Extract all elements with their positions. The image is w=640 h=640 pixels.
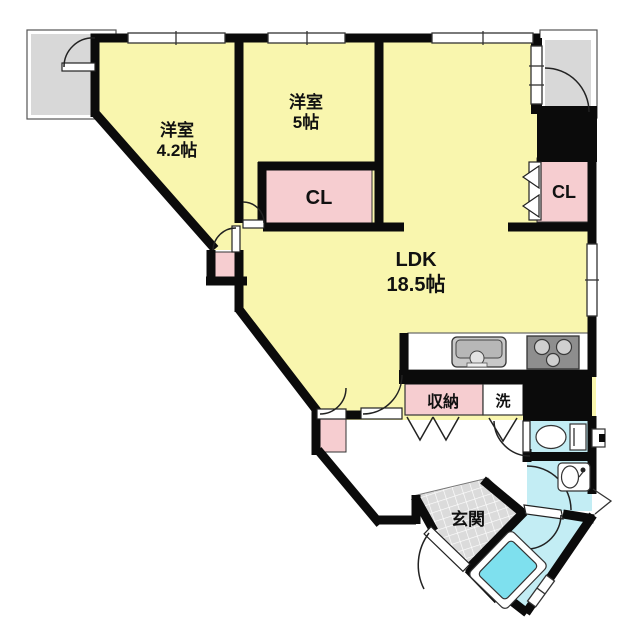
ldk-name-label: LDK <box>395 249 437 271</box>
window-right <box>585 244 599 316</box>
room-ldk-extension <box>379 38 540 232</box>
floor-plan: 洋室 4.2帖 洋室 5帖 CL CL LDK 18.5帖 収納 洗 玄関 <box>0 0 640 640</box>
closet-mini-bedroom1 <box>215 252 237 279</box>
laundry-bifold-door <box>489 418 517 441</box>
bedroom1-size-label: 4.2帖 <box>157 140 198 160</box>
window-top-2 <box>268 31 345 45</box>
closet-right-label: CL <box>552 182 576 202</box>
toilet-icon <box>536 424 586 450</box>
toilet-pipe-space <box>592 429 605 447</box>
window-top-3 <box>432 31 533 45</box>
storage-bifold-door <box>407 417 459 440</box>
bedroom2-name-label: 洋室 <box>289 92 323 112</box>
kitchen-counter <box>408 333 592 370</box>
washbasin-icon <box>558 463 590 491</box>
bedroom1-name-label: 洋室 <box>160 120 194 140</box>
closet-middle-label: CL <box>306 187 333 209</box>
entrance-label: 玄関 <box>451 509 485 529</box>
storage-label: 収納 <box>427 392 459 411</box>
window-top-1 <box>128 31 225 45</box>
gas-stove-icon <box>527 336 579 369</box>
floor-plan-page: 洋室 4.2帖 洋室 5帖 CL CL LDK 18.5帖 収納 洗 玄関 <box>0 0 640 640</box>
ldk-size-label: 18.5帖 <box>387 273 446 296</box>
bedroom2-size-label: 5帖 <box>293 112 319 132</box>
closet-hall <box>318 415 346 452</box>
kitchen-sink-icon <box>452 337 506 367</box>
window-service-corner <box>529 46 544 104</box>
laundry-label: 洗 <box>495 392 510 410</box>
